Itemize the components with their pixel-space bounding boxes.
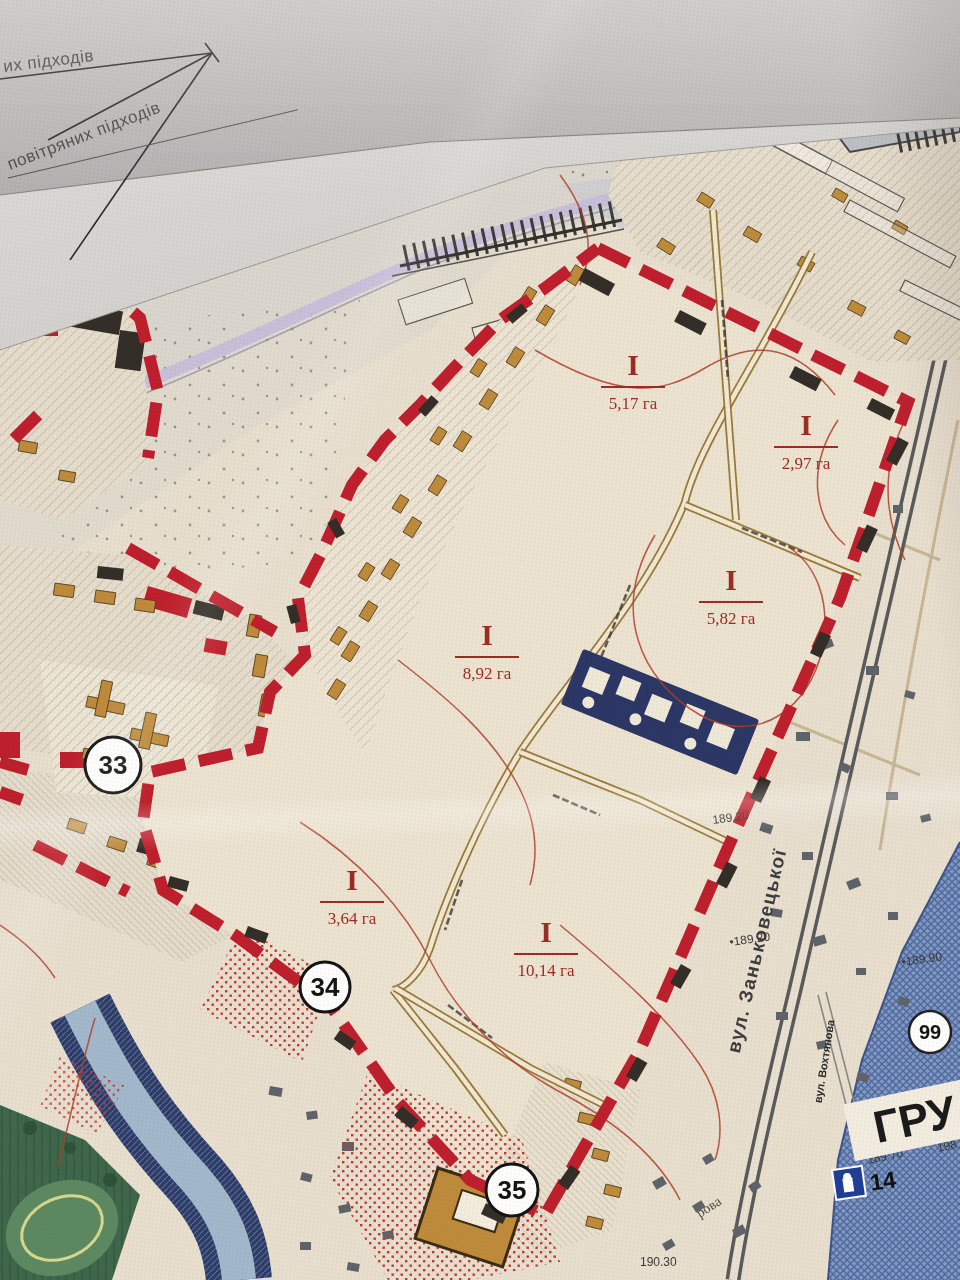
marker-99: 99 bbox=[909, 1011, 951, 1053]
parcel-numeral: I bbox=[800, 408, 812, 441]
parcel-numeral: I bbox=[481, 618, 493, 651]
marker-14-label: 14 bbox=[868, 1166, 897, 1195]
marker-33: 33 bbox=[85, 737, 141, 793]
marker-35-label: 35 bbox=[498, 1175, 527, 1205]
parcel-area: 5,82 га bbox=[707, 609, 756, 628]
parcel-area: 10,14 га bbox=[517, 961, 574, 980]
parcel-area: 2,97 га bbox=[782, 454, 831, 473]
parcel-numeral: I bbox=[346, 863, 358, 896]
parcel-area: 3,64 га bbox=[328, 909, 377, 928]
elevation-mark: 190.30 bbox=[640, 1255, 677, 1269]
map-photo: их підходів повітряних підходів I 5,17 г… bbox=[0, 0, 960, 1280]
marker-34-label: 34 bbox=[311, 972, 340, 1002]
marker-34: 34 bbox=[300, 962, 350, 1012]
plan-map: их підходів повітряних підходів I 5,17 г… bbox=[0, 0, 960, 1280]
parcel-area: 5,17 га bbox=[609, 394, 658, 413]
parcel-area: 8,92 га bbox=[463, 664, 512, 683]
marker-99-label: 99 bbox=[919, 1021, 941, 1043]
parcel-numeral: I bbox=[627, 348, 639, 381]
marker-33-label: 33 bbox=[99, 750, 128, 780]
parcel-numeral: I bbox=[725, 563, 737, 596]
marker-35: 35 bbox=[486, 1164, 538, 1216]
parcel-numeral: I bbox=[540, 915, 552, 948]
